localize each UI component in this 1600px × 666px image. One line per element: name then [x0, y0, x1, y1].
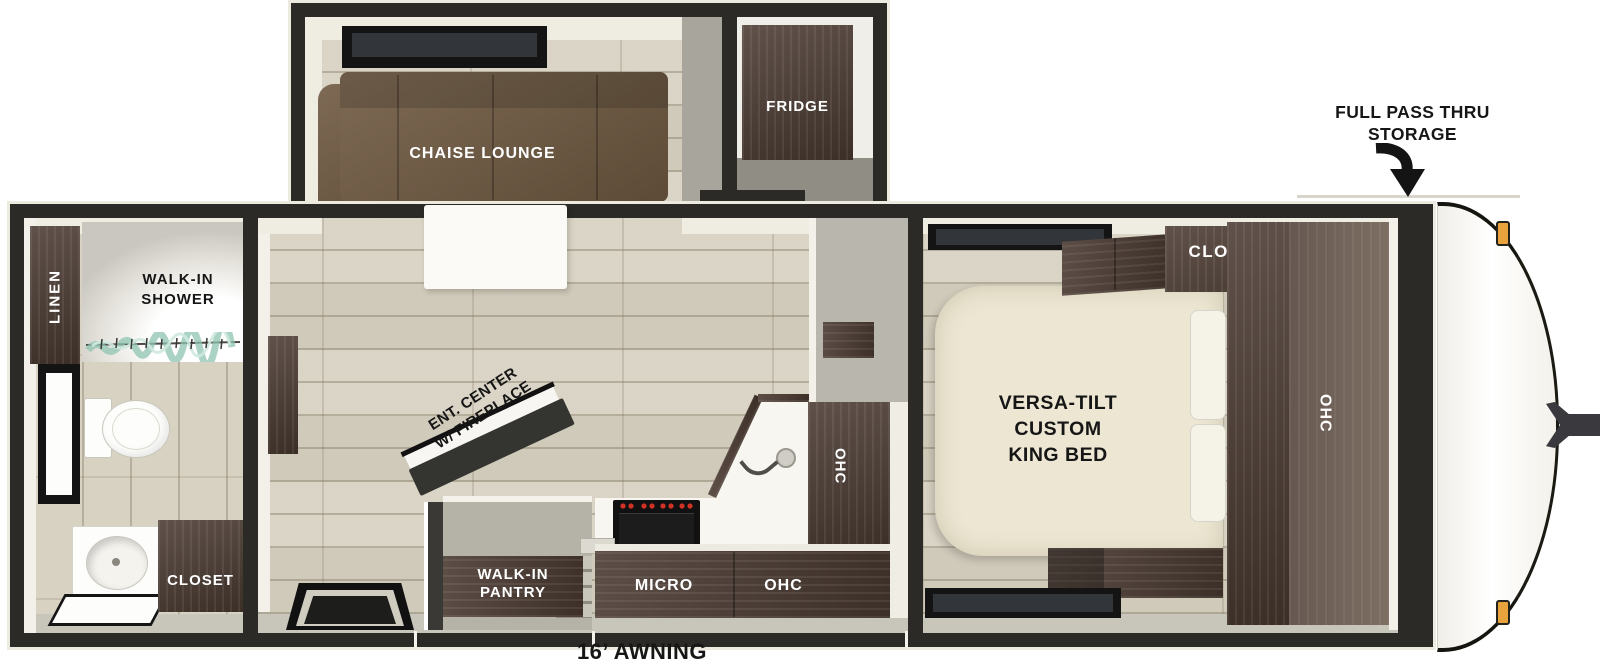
bedroom-ohc-strip	[1227, 222, 1289, 625]
sofa-seam-3	[596, 75, 598, 200]
linen-label: LINEN	[40, 242, 70, 352]
sofa-seam-1	[397, 75, 399, 200]
hallway-wall-edge	[809, 218, 816, 402]
micro-label: MICRO	[608, 576, 720, 595]
pantry-zone-edge	[443, 496, 592, 502]
slideout-divider-wall	[722, 3, 737, 218]
kitchen-counter-edge	[595, 544, 890, 551]
sink-drain	[112, 558, 120, 566]
king-bed-label: VERSA-TILT CUSTOM KING BED	[950, 390, 1166, 468]
stove-burners	[613, 500, 700, 512]
chaise-lounge-label: CHAISE LOUNGE	[390, 144, 575, 163]
bedroom-window-bottom-glass	[933, 594, 1113, 612]
stove-panel	[619, 513, 694, 544]
storage-arrow-icon	[1368, 143, 1426, 201]
counter-top-trim	[758, 394, 810, 402]
walk-in-pantry-label: WALK-IN PANTRY	[443, 566, 583, 602]
bedroom-overhead-wing-seam	[1114, 238, 1116, 290]
fridge	[742, 25, 853, 160]
trailer-nose	[1437, 202, 1559, 652]
bathroom-window-glass	[46, 373, 72, 495]
interior-door-panel	[268, 336, 298, 454]
bathroom-wall	[243, 204, 258, 647]
floorplan-canvas: FRIDGE CHAISE LOUNGE WALK-IN SHOWER LINE…	[0, 0, 1600, 666]
kitchen-ohc-lower-label: OHC	[736, 576, 831, 595]
kitchen-right-wall-face	[890, 402, 908, 618]
bath-mat	[47, 594, 168, 626]
bedroom-pocket-door	[823, 322, 874, 358]
bathroom-closet	[158, 520, 243, 612]
living-window-glass	[352, 33, 537, 57]
marker-light-top	[1496, 221, 1510, 246]
toilet-seat	[112, 408, 160, 450]
entry-step-tread	[304, 596, 396, 624]
sofa-seam-2	[492, 75, 494, 200]
bottom-wall-seam-1	[414, 631, 417, 647]
sofa-backrest	[340, 72, 668, 108]
bed-pillow-top	[1190, 310, 1226, 420]
bathroom-closet-label: CLOSET	[158, 571, 243, 590]
kitchen-cabinet-seam	[733, 552, 735, 617]
bedroom-wall	[908, 204, 923, 647]
ent-wall-bar	[428, 502, 443, 630]
shower-glass-door	[84, 332, 242, 362]
walk-in-shower-label: WALK-IN SHOWER	[108, 270, 248, 310]
corner-sink-drain	[776, 448, 796, 468]
bed-pillow-bottom	[1190, 424, 1226, 522]
bedroom-right-wall-face	[1389, 218, 1398, 630]
bedroom-ohc-label: OHC	[1310, 378, 1340, 448]
marker-light-bottom	[1496, 600, 1510, 625]
fridge-bay-wall-stub	[700, 190, 805, 204]
hallway-floor	[815, 218, 908, 402]
fridge-label: FRIDGE	[742, 97, 853, 116]
awning-label: 16’ AWNING	[518, 642, 766, 661]
kitchen-ohc-upper-label: OHC	[826, 432, 854, 500]
coffee-table	[424, 205, 567, 289]
slideout-right-wall-face	[682, 17, 722, 204]
storage-callout-label: FULL PASS THRU STORAGE	[1290, 101, 1535, 145]
